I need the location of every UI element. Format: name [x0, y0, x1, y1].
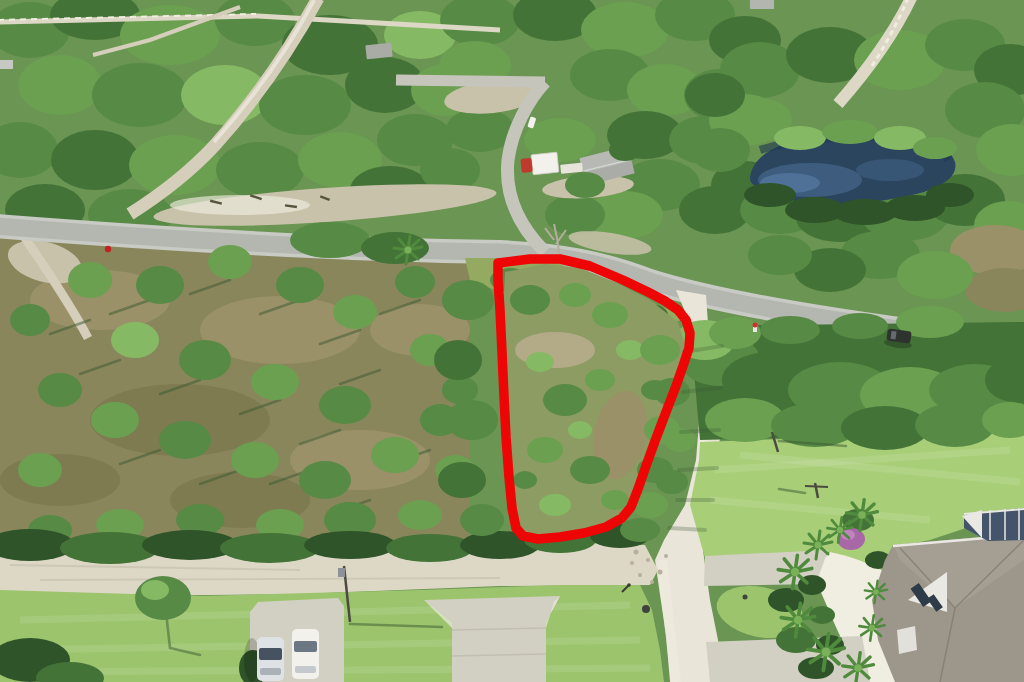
trash-can: [642, 605, 650, 613]
house: [872, 533, 1024, 682]
stop-sign: [105, 246, 111, 252]
truck-cab: [520, 158, 532, 173]
shrub-band-right: [675, 306, 1024, 450]
tree-over-shed-2: [609, 139, 641, 161]
truck-box: [531, 152, 559, 175]
aerial-photo: [0, 0, 1024, 682]
tree-over-shed: [565, 172, 605, 198]
top-cross-road: [396, 80, 545, 82]
hydrant-marker: [753, 323, 758, 333]
